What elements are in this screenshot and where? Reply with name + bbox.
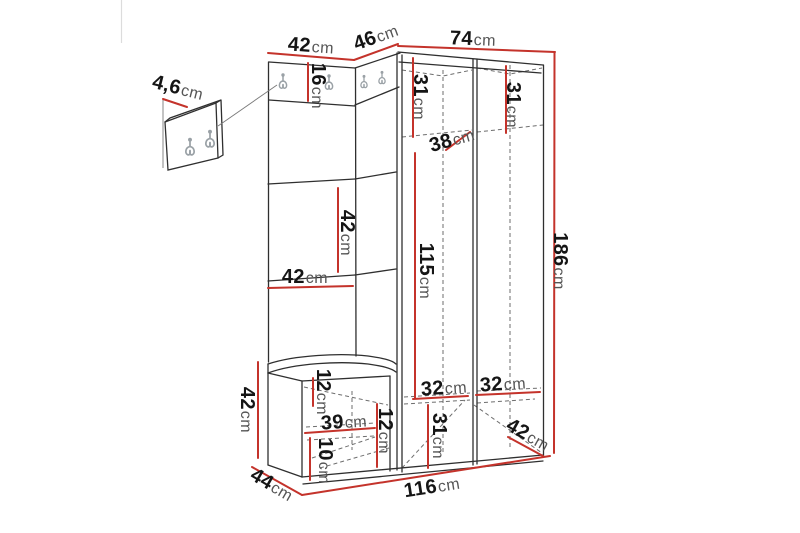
dim-lower-shelf-left-height: 32cm	[420, 376, 467, 399]
dim-panel-width: 42cm	[282, 267, 328, 287]
dim-unit: cm	[503, 375, 526, 394]
dim-hook-rail-height: 16cm	[308, 63, 328, 109]
dim-unit: cm	[337, 234, 354, 256]
dim-value: 31	[428, 413, 450, 436]
dim-value: 42	[287, 33, 311, 57]
dim-upper-compartment-right-height: 31cm	[503, 82, 523, 128]
dim-unit: cm	[306, 270, 328, 287]
dim-value: 31	[502, 82, 524, 105]
dim-unit: cm	[410, 98, 427, 120]
wall-hook-panel	[165, 100, 223, 170]
dim-value: 186	[549, 232, 571, 266]
furniture-line-drawing	[0, 0, 800, 533]
dim-panel-segment-height: 42cm	[337, 210, 357, 256]
dim-unit: cm	[344, 413, 367, 432]
dim-value: 115	[415, 243, 437, 276]
dim-lower-compartment-height: 31cm	[429, 413, 449, 459]
dim-unit: cm	[315, 462, 332, 484]
dim-bench-compartment-height: 12cm	[375, 408, 395, 454]
dim-unit: cm	[375, 432, 392, 454]
dim-unit: cm	[416, 277, 433, 299]
dim-hanging-space-height: 115cm	[416, 243, 436, 300]
diagram-canvas: 4,6cm 42cm 46cm 74cm 16cm 31cm 31cm 38cm…	[0, 0, 800, 533]
dim-upper-compartment-left-height: 31cm	[410, 74, 430, 120]
unit-bottom-edge	[302, 455, 543, 477]
dim-unit: cm	[308, 87, 325, 109]
dim-top-width-left: 42cm	[287, 34, 334, 57]
dim-value: 32	[479, 373, 503, 397]
dim-unit: cm	[503, 106, 520, 128]
dim-value: 42	[336, 210, 358, 233]
dim-unit: cm	[550, 267, 567, 289]
dim-value: 12	[374, 408, 396, 431]
coat-hook-icon	[279, 73, 286, 88]
dim-bench-height: 42cm	[237, 387, 257, 433]
coat-hook-icon	[361, 75, 367, 88]
dim-value: 42	[282, 266, 305, 288]
coat-hook-icon	[206, 130, 214, 147]
dim-unit: cm	[237, 411, 254, 433]
dim-total-height: 186cm	[550, 232, 570, 290]
dim-lower-shelf-right-height: 32cm	[479, 372, 526, 395]
coat-hook-icon	[186, 138, 194, 155]
dim-value: 31	[409, 74, 431, 97]
dim-bench-shelf-width: 39cm	[320, 410, 367, 433]
dim-value: 74	[450, 27, 474, 50]
dim-unit: cm	[437, 476, 462, 496]
dim-unit: cm	[473, 32, 496, 50]
dim-value: 16	[307, 63, 329, 86]
coat-hook-icon	[379, 71, 385, 84]
dim-value: 10	[314, 438, 336, 461]
dim-unit: cm	[311, 39, 334, 58]
dim-value: 12	[312, 369, 334, 392]
dim-value: 42	[236, 387, 258, 410]
dim-unit: cm	[429, 437, 446, 459]
dim-value: 39	[320, 411, 344, 435]
dim-value: 32	[420, 377, 444, 401]
dim-top-width-right: 74cm	[450, 28, 497, 50]
dim-bench-top-rail-height: 12cm	[313, 369, 333, 415]
dim-bench-bottom-clearance: 10cm	[315, 438, 335, 484]
dim-unit: cm	[444, 379, 467, 398]
